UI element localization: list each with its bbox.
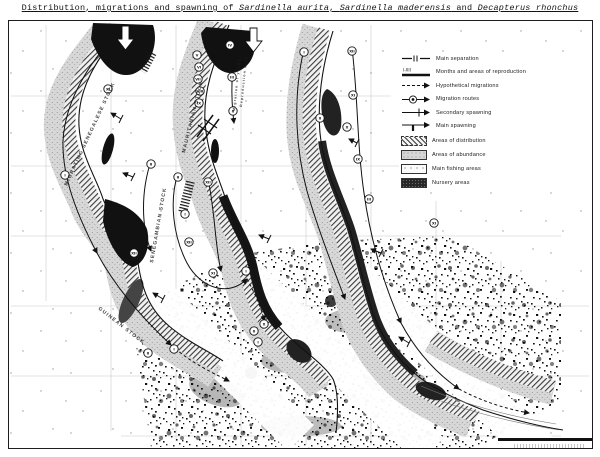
month-marker: IV — [226, 41, 234, 49]
title-species-1: Sardinella aurita — [239, 3, 329, 13]
svg-text:I: I — [184, 212, 185, 216]
svg-text:XII: XII — [186, 240, 191, 244]
legend-label: Main spawning — [436, 123, 476, 129]
svg-text:II: II — [177, 175, 180, 179]
month-marker: II — [250, 327, 258, 335]
legend-label: Areas of distribution — [432, 138, 486, 144]
svg-text:I-XII: I-XII — [403, 67, 411, 72]
legend-label: Main separation — [436, 56, 479, 62]
title-species-2: Sardinella maderensis — [340, 3, 451, 13]
svg-text:XI: XI — [351, 93, 355, 97]
legend-label: Main fishing areas — [432, 166, 481, 172]
svg-text:I: I — [245, 269, 246, 273]
month-marker: XII — [348, 47, 356, 55]
svg-text:I: I — [303, 50, 304, 54]
svg-text:IX: IX — [356, 157, 360, 161]
legend-label: Nursery areas — [432, 180, 470, 186]
legend-row-hypothetical-migrations: Hypothetical migrations — [401, 80, 593, 91]
month-marker: III — [365, 195, 373, 203]
month-marker: XII — [130, 249, 138, 257]
month-marker: I — [254, 338, 262, 346]
month-marker: I — [170, 345, 178, 353]
svg-text:VI: VI — [197, 65, 201, 69]
svg-text:XII: XII — [349, 49, 354, 53]
legend-row-areas-abundance: Areas of abundance — [401, 150, 593, 160]
legend-label: Areas of abundance — [432, 152, 486, 158]
legend-symbol-migration-routes — [401, 94, 431, 105]
legend-row-secondary-spawning: Secondary spawning — [401, 107, 593, 118]
legend-row-main-fishing-areas: Main fishing areas — [401, 164, 593, 174]
month-marker: II — [316, 114, 324, 122]
title-sep-2: and — [451, 3, 478, 13]
legend-swatch-areas-distribution — [401, 136, 427, 146]
svg-text:X: X — [263, 322, 266, 326]
legend-row-main-separation: Main separation — [401, 53, 593, 64]
month-marker: XI — [430, 219, 438, 227]
title-prefix: Distribution, migrations and spawning of — [22, 3, 239, 13]
svg-text:II: II — [150, 162, 153, 166]
month-marker: V — [193, 51, 201, 59]
month-marker: X — [343, 123, 351, 131]
figure-title: Distribution, migrations and spawning of… — [0, 3, 600, 13]
month-marker: IX — [354, 155, 362, 163]
corner-smudge — [514, 444, 584, 448]
legend-symbol-main-separation — [401, 53, 431, 64]
legend-symbol-hypothetical-migrations — [401, 80, 431, 91]
svg-text:II: II — [147, 351, 150, 355]
svg-text:III: III — [230, 75, 234, 79]
svg-text:XI: XI — [432, 221, 436, 225]
page: { "title": { "prefix": "Distribution, mi… — [0, 0, 600, 457]
legend-row-months-reproduction: I-XII Months and areas of reproduction — [401, 67, 593, 78]
month-marker: II — [144, 349, 152, 357]
month-marker: XII — [185, 238, 193, 246]
svg-text:XII: XII — [205, 180, 210, 184]
svg-text:XII: XII — [131, 251, 136, 255]
month-marker: X — [260, 320, 268, 328]
svg-text:V: V — [196, 53, 199, 57]
legend-swatch-nursery-areas — [401, 178, 427, 188]
legend-row-migration-routes: Migration routes — [401, 94, 593, 105]
svg-text:XI: XI — [211, 271, 215, 275]
legend-label: Months and areas of reproduction — [436, 69, 526, 75]
svg-text:X: X — [346, 125, 349, 129]
legend-symbol-main-spawning — [401, 121, 431, 132]
legend-label: Migration routes — [436, 96, 479, 102]
legend-row-nursery-areas: Nursery areas — [401, 178, 593, 188]
legend-swatch-main-fishing-areas — [401, 164, 427, 174]
scan-artifact-bar — [498, 438, 592, 441]
month-marker: XII — [204, 178, 212, 186]
legend-row-main-spawning: Main spawning — [401, 121, 593, 132]
svg-text:I: I — [173, 347, 174, 351]
month-marker: II — [147, 160, 155, 168]
title-species-3: Decapterus rhonchus — [478, 3, 579, 13]
legend-swatch-areas-abundance — [401, 150, 427, 160]
svg-text:II: II — [319, 116, 322, 120]
legend-symbol-secondary-spawning — [401, 107, 431, 118]
month-marker: I — [300, 48, 308, 56]
legend-label: Hypothetical migrations — [436, 83, 499, 89]
map-frame: XIIIIXIIIIIVVIVIIVIIIIXIVIIIIIIIXIIIXIIX… — [8, 20, 593, 449]
month-marker: II — [174, 173, 182, 181]
legend-label: Secondary spawning — [436, 110, 492, 116]
month-marker: I — [242, 267, 250, 275]
svg-text:I: I — [257, 340, 258, 344]
month-marker: VI — [195, 63, 203, 71]
legend-row-areas-distribution: Areas of distribution — [401, 136, 593, 146]
title-sep-1: , — [329, 3, 340, 13]
svg-text:IV: IV — [228, 43, 232, 47]
svg-text:II: II — [253, 329, 256, 333]
month-marker: XI — [349, 91, 357, 99]
legend: Main separation I-XII Months and areas o… — [399, 52, 593, 192]
month-marker: XI — [209, 269, 217, 277]
legend-symbol-months-reproduction: I-XII — [401, 67, 431, 78]
svg-text:III: III — [367, 197, 371, 201]
month-marker: I — [181, 210, 189, 218]
svg-text:I: I — [64, 173, 65, 177]
